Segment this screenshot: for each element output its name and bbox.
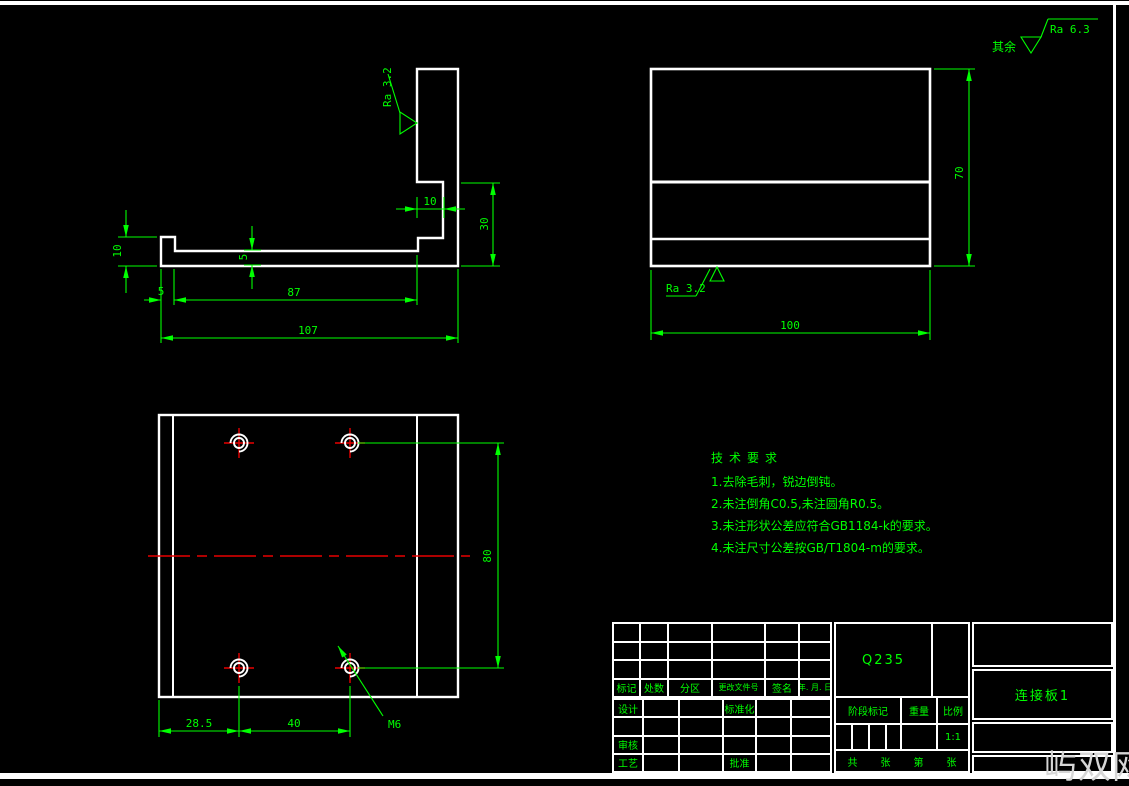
side-view-outline	[161, 69, 458, 266]
tech-requirements-title: 技术要求	[711, 447, 938, 469]
top-view-dimension-lines	[159, 443, 498, 731]
dim-edge-to-hole: 28.5	[186, 717, 213, 730]
sig-cell	[644, 737, 678, 753]
dim-hole-spacing-y: 80	[481, 549, 494, 562]
sheet-unit2-label: 张	[947, 754, 957, 769]
label-approve: 批准	[724, 755, 755, 771]
rev-cell	[669, 643, 711, 660]
label-review: 审核	[614, 737, 642, 753]
front-view-outline	[651, 69, 930, 266]
cad-drawing-sheet: 107 87 5 10 5 10 30 Ra 3.2	[0, 0, 1129, 786]
thread-callout: M6	[388, 718, 401, 731]
label-process: 工艺	[614, 755, 642, 771]
revision-table: 标记 处数 分区 更改文件号 签名 年. 月. 日	[612, 622, 832, 698]
rev-cell	[713, 643, 764, 660]
rev-cell	[713, 624, 764, 641]
tech-requirement-line: 1.去除毛刺，锐边倒钝。	[711, 471, 938, 493]
sig-cell	[680, 700, 722, 716]
dim-flange-drop: 30	[478, 217, 491, 230]
sig-cell	[680, 718, 722, 734]
sheet-total-label: 共	[848, 754, 858, 769]
sheet-page-label: 第	[914, 754, 924, 769]
top-view: 28.5 40 80 M6	[148, 415, 504, 737]
sig-cell	[792, 755, 830, 771]
dim-front-width: 100	[780, 319, 800, 332]
sig-cell	[724, 718, 755, 734]
front-roughness-value: Ra 3.2	[666, 282, 706, 295]
rev-cell	[614, 643, 639, 660]
sig-cell	[792, 737, 830, 753]
rev-cell	[641, 643, 667, 660]
sheet-count-row: 共 张 第 张	[834, 749, 970, 773]
weight-label: 重量	[900, 696, 938, 725]
company-name-cell	[972, 622, 1113, 667]
tech-requirement-line: 4.未注尺寸公差按GB/T1804-m的要求。	[711, 537, 938, 559]
stage-mark-label: 阶段标记	[834, 696, 902, 725]
label-design: 设计	[614, 700, 642, 716]
dim-notch-width: 10	[423, 195, 436, 208]
dim-hole-spacing-x: 40	[287, 717, 300, 730]
material-cell: Q235	[834, 622, 933, 698]
technical-requirements: 技术要求 1.去除毛刺，锐边倒钝。 2.未注倒角C0.5,未注圆角R0.5。 3…	[711, 447, 938, 559]
rev-header-date: 年. 月. 日	[800, 680, 830, 697]
part-name-cell: 连接板1	[972, 669, 1113, 720]
general-roughness-label: 其余	[992, 39, 1016, 54]
dim-total-length: 107	[298, 324, 318, 337]
rev-cell	[800, 661, 830, 678]
top-view-extension-lines	[159, 443, 504, 737]
tech-requirement-line: 2.未注倒角C0.5,未注圆角R0.5。	[711, 493, 938, 515]
rev-header-count: 处数	[641, 680, 667, 697]
signature-table: 设计 标准化 审核 工艺 批准	[612, 698, 832, 773]
side-view-dimension-lines	[126, 183, 493, 338]
sig-cell	[792, 700, 830, 716]
rev-header-mark: 标记	[614, 680, 639, 697]
sig-cell	[644, 718, 678, 734]
dim-lip-width: 5	[158, 285, 165, 298]
rev-cell	[669, 661, 711, 678]
front-view-extension-lines	[651, 69, 975, 340]
rev-cell	[641, 661, 667, 678]
sig-cell	[757, 755, 790, 771]
material-side-cell	[931, 622, 970, 698]
rev-cell	[614, 624, 639, 641]
tech-requirement-line: 3.未注形状公差应符合GB1184-k的要求。	[711, 515, 938, 537]
rev-cell	[766, 643, 798, 660]
sig-cell	[644, 700, 678, 716]
general-roughness-value: Ra 6.3	[1050, 23, 1090, 36]
rev-cell	[614, 661, 639, 678]
rev-cell	[766, 661, 798, 678]
dim-web-length: 87	[287, 286, 300, 299]
label-standardize: 标准化	[724, 700, 755, 716]
rev-header-zone: 分区	[669, 680, 711, 697]
sig-cell	[792, 718, 830, 734]
rev-cell	[669, 624, 711, 641]
sig-cell	[614, 718, 642, 734]
rev-header-signature: 签名	[766, 680, 798, 697]
dim-front-height: 70	[953, 166, 966, 179]
side-view: 107 87 5 10 5 10 30 Ra 3.2	[111, 67, 500, 343]
rev-cell	[800, 624, 830, 641]
sig-cell	[644, 755, 678, 771]
rev-header-docno: 更改文件号	[713, 680, 764, 697]
scale-value-cell: 1:1	[936, 723, 970, 751]
sig-cell	[724, 737, 755, 753]
rev-cell	[641, 624, 667, 641]
side-roughness-value: Ra 3.2	[381, 67, 394, 107]
sig-cell	[757, 718, 790, 734]
weight-value-cell	[900, 723, 938, 751]
sig-cell	[757, 737, 790, 753]
scale-label: 比例	[936, 696, 970, 725]
sheet-unit-label: 张	[881, 754, 891, 769]
rev-cell	[800, 643, 830, 660]
general-roughness-note: 其余 Ra 6.3	[992, 19, 1098, 54]
dim-web-thickness: 5	[237, 254, 250, 261]
watermark: 屿双网	[1044, 740, 1129, 786]
sig-cell	[680, 737, 722, 753]
rev-cell	[713, 661, 764, 678]
sig-cell	[680, 755, 722, 771]
front-view: 100 70 Ra 3.2	[651, 69, 975, 340]
title-block: 标记 处数 分区 更改文件号 签名 年. 月. 日 设计 标准化 审核 工艺 批…	[612, 622, 1113, 773]
dim-lip-height: 10	[111, 244, 124, 257]
rev-cell	[766, 624, 798, 641]
sig-cell	[757, 700, 790, 716]
